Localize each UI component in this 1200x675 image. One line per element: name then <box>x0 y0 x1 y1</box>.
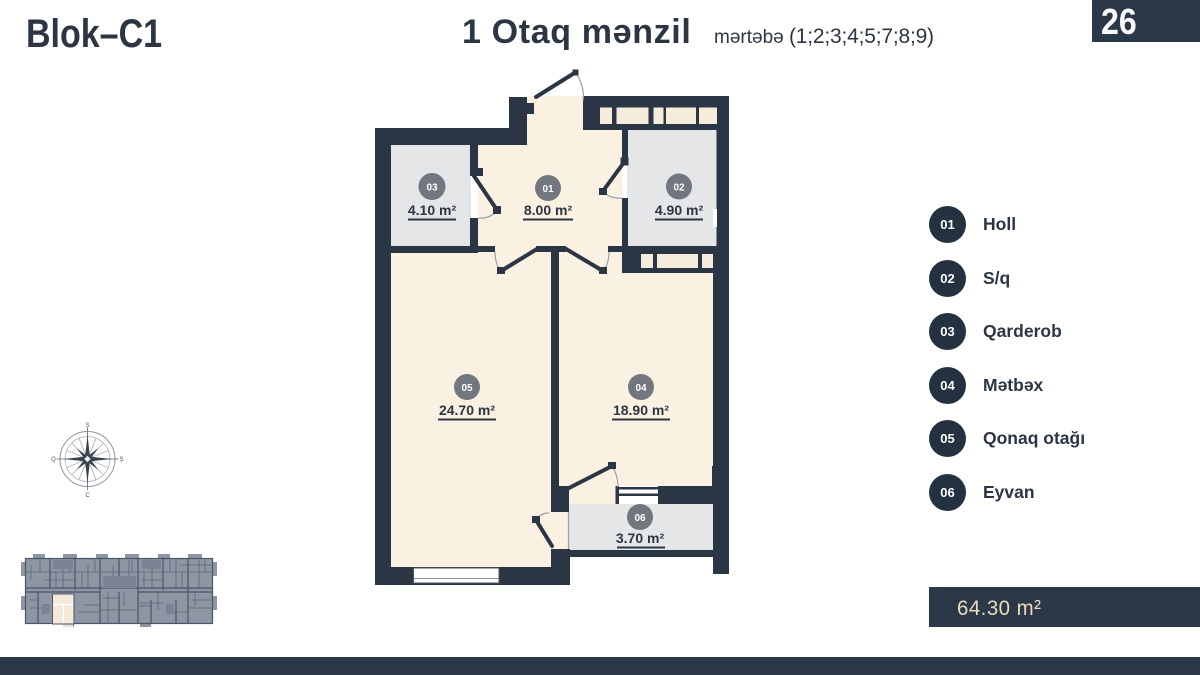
svg-text:04: 04 <box>635 383 647 394</box>
svg-text:24.70 m²: 24.70 m² <box>439 402 495 418</box>
svg-text:Ş: Ş <box>85 423 89 429</box>
svg-text:4.10 m²: 4.10 m² <box>408 202 457 218</box>
svg-text:Q: Q <box>51 457 56 463</box>
svg-text:01: 01 <box>542 184 554 195</box>
svg-text:C: C <box>85 493 90 499</box>
svg-text:Ş: Ş <box>119 457 123 463</box>
svg-text:05: 05 <box>461 383 473 394</box>
svg-text:06: 06 <box>634 513 646 524</box>
svg-text:03: 03 <box>426 183 438 194</box>
svg-text:3.70 m²: 3.70 m² <box>616 530 665 546</box>
svg-text:02: 02 <box>673 183 685 194</box>
svg-text:8.00 m²: 8.00 m² <box>524 202 573 218</box>
svg-text:4.90 m²: 4.90 m² <box>655 202 704 218</box>
svg-text:18.90 m²: 18.90 m² <box>613 402 669 418</box>
